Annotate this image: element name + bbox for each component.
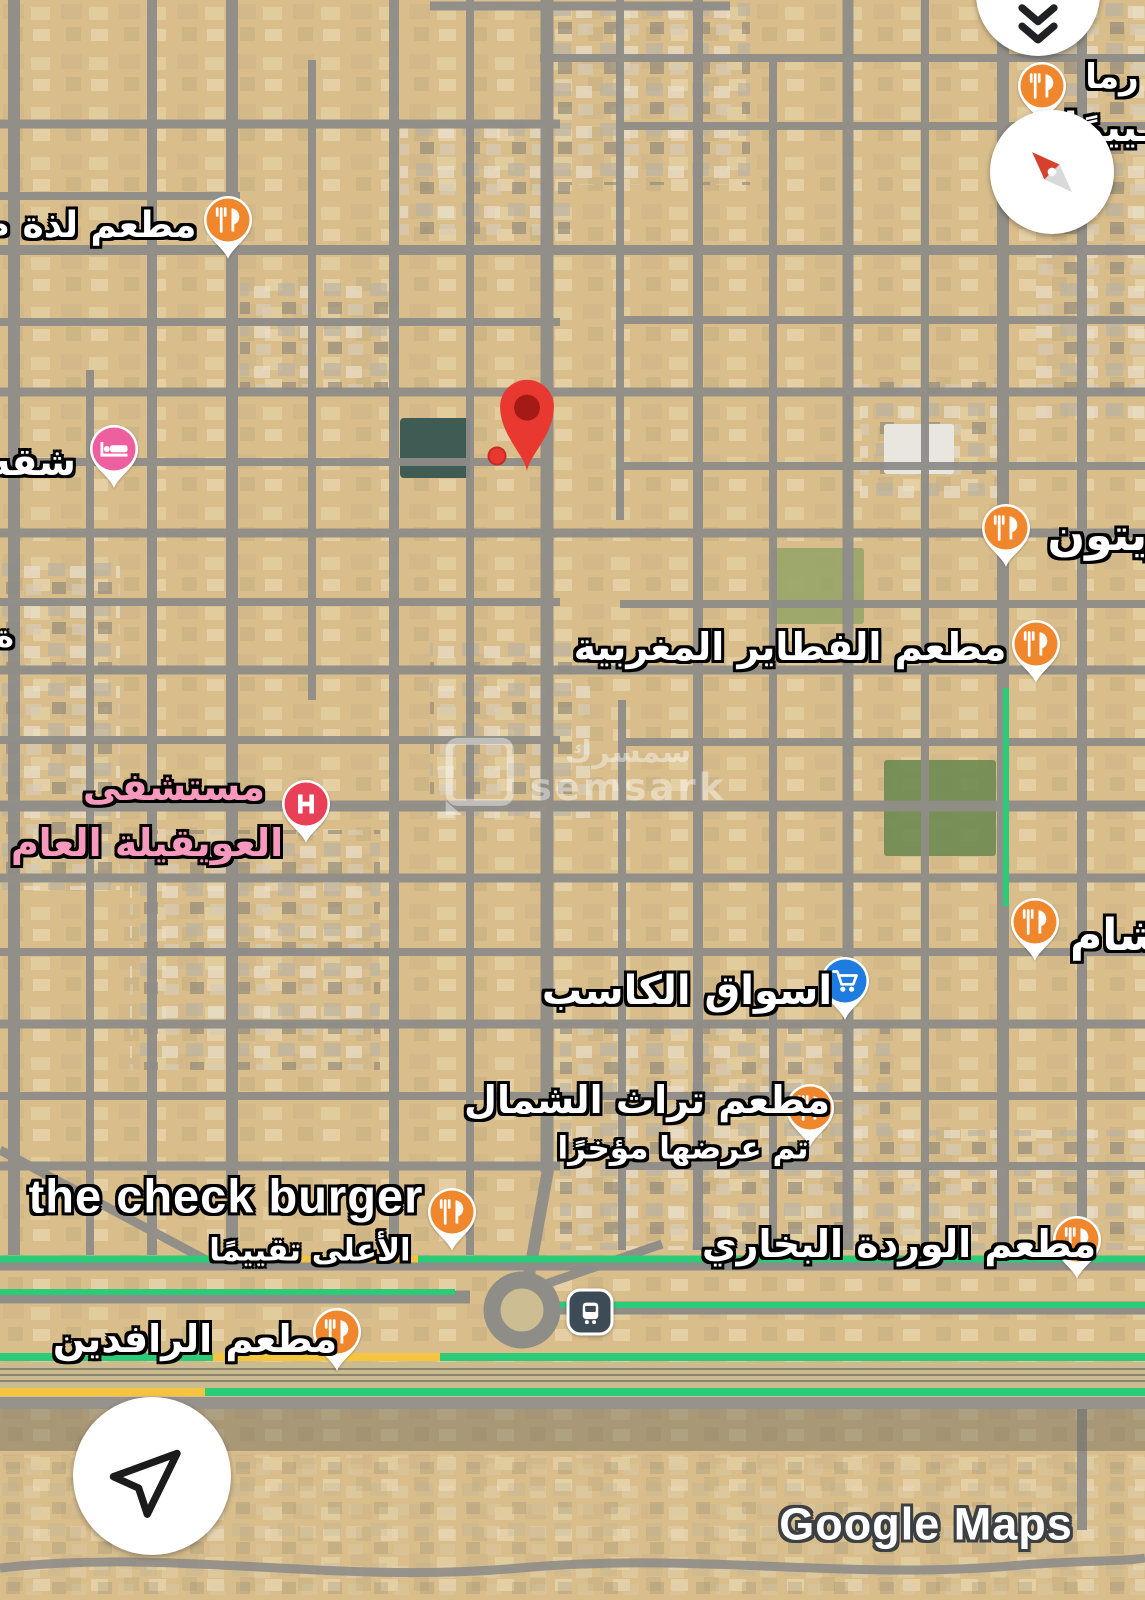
map-brand-watermark: سمسرك semsark [446, 737, 727, 807]
restaurant-pin-icon[interactable] [978, 501, 1034, 569]
poi-label-kasib[interactable]: اسواق الكاسب [542, 970, 832, 1012]
poi-pin-sham[interactable] [1007, 895, 1063, 963]
poi-sublabel-turath[interactable]: تم عرضها مؤخرًا [558, 1133, 809, 1166]
poi-label-hospital-line1[interactable]: مستشفى [83, 768, 265, 808]
poi-pin-check-burger[interactable] [424, 1185, 480, 1253]
navigation-arrow-icon [87, 1411, 217, 1541]
edge-label-rama[interactable]: رما [1085, 60, 1138, 96]
poi-label-shaqah[interactable]: شقه [0, 443, 76, 483]
watermark-logo-icon [446, 738, 514, 806]
poi-label-wardah[interactable]: مطعم الوردة البخاري [702, 1225, 1096, 1265]
restaurant-pin-icon[interactable] [1007, 895, 1063, 963]
poi-pin-shaqah-hotel[interactable] [86, 422, 142, 490]
restaurant-pin-icon[interactable] [1008, 617, 1064, 685]
recenter-navigation-button[interactable] [73, 1397, 231, 1555]
destination-red-pin[interactable] [488, 374, 566, 478]
poi-label-hospital-line2[interactable]: العويقيلة العام [11, 824, 283, 864]
poi-label-fatayer[interactable]: مطعم الفطاير المغربية [574, 628, 1007, 668]
poi-label-zaytoon[interactable]: زيتون [1048, 513, 1145, 559]
bus-station-marker[interactable] [567, 1289, 614, 1336]
red-map-pin-icon[interactable] [488, 374, 566, 474]
hotel-bed-pin-icon[interactable] [86, 422, 142, 490]
map-viewport[interactable]: سمسرك semsark [0, 0, 1145, 1600]
poi-label-turath[interactable]: مطعم تراث الشمال [464, 1081, 830, 1121]
poi-sublabel-check-burger[interactable]: الأعلى تقييمًا [209, 1235, 410, 1268]
google-maps-watermark: Google Maps [779, 1500, 1073, 1547]
watermark-arabic: سمسرك [565, 737, 691, 769]
watermark-latin: semsark [530, 768, 727, 807]
double-chevron-down-icon [1013, 2, 1063, 48]
restaurant-pin-icon[interactable] [424, 1185, 480, 1253]
bus-icon [574, 1296, 606, 1328]
poi-pin-lathah[interactable] [200, 193, 256, 261]
poi-label-check-burger[interactable]: the check burger [29, 1171, 424, 1220]
poi-pin-zaytoon[interactable] [978, 501, 1034, 569]
edge-label-taa[interactable]: ة [0, 621, 14, 653]
poi-label-sham[interactable]: شام [1070, 913, 1145, 959]
poi-label-rafidain[interactable]: مطعم الرافدين [53, 1320, 337, 1360]
hospital-h-pin-icon[interactable] [278, 777, 334, 845]
poi-label-lathah[interactable]: مطعم لذة م [0, 207, 196, 245]
restaurant-pin-icon[interactable] [200, 193, 256, 261]
poi-pin-fatayer[interactable] [1008, 617, 1064, 685]
compass-needle-icon [1018, 138, 1086, 206]
compass-button[interactable] [990, 110, 1114, 234]
poi-pin-hospital[interactable] [278, 777, 334, 845]
